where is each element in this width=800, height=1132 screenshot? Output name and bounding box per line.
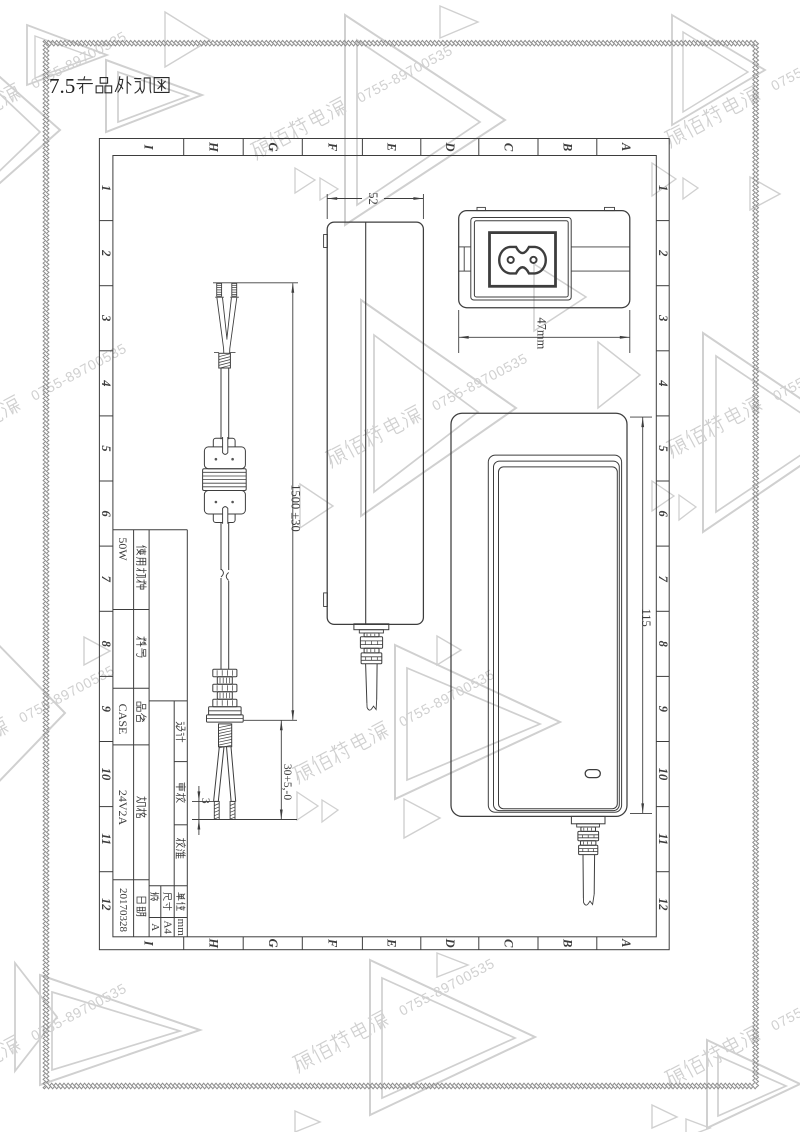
svg-text:50W: 50W — [116, 537, 130, 561]
svg-text:G: G — [266, 142, 280, 151]
svg-text:A: A — [619, 938, 633, 947]
svg-text:B: B — [560, 938, 574, 947]
svg-text:2: 2 — [99, 249, 113, 256]
svg-text:H: H — [206, 141, 220, 153]
svg-text:3: 3 — [199, 798, 211, 804]
svg-text:11: 11 — [99, 833, 113, 845]
svg-text:12: 12 — [656, 898, 670, 911]
svg-text:10: 10 — [656, 768, 670, 781]
svg-text:3: 3 — [656, 314, 670, 321]
svg-text:H: H — [206, 937, 220, 949]
svg-text:2: 2 — [656, 249, 670, 256]
svg-text:4: 4 — [99, 379, 113, 386]
svg-text:0755-89700535: 0755-89700535 — [396, 955, 497, 1019]
svg-text:20170328: 20170328 — [117, 888, 129, 933]
svg-text:I: I — [141, 144, 155, 151]
svg-text:24V2A: 24V2A — [116, 790, 130, 826]
svg-text:E: E — [385, 142, 399, 151]
svg-text:7.5: 7.5 — [49, 74, 75, 98]
svg-text:E: E — [385, 938, 399, 947]
svg-text:C: C — [501, 143, 515, 152]
svg-text:1500 ±30: 1500 ±30 — [288, 484, 302, 532]
svg-text:11: 11 — [656, 833, 670, 845]
svg-text:30+5,-0: 30+5,-0 — [281, 764, 293, 800]
svg-text:F: F — [325, 142, 339, 152]
svg-text:5: 5 — [656, 445, 670, 451]
svg-text:D: D — [443, 141, 457, 151]
svg-text:0755-89700535: 0755-89700535 — [396, 666, 497, 730]
svg-text:8: 8 — [99, 641, 113, 648]
svg-text:0755-89700535: 0755-89700535 — [768, 30, 800, 94]
svg-text:6: 6 — [99, 510, 113, 517]
svg-text:G: G — [266, 939, 280, 948]
svg-text:1: 1 — [99, 185, 113, 191]
svg-text:D: D — [443, 938, 457, 948]
svg-text:115: 115 — [639, 608, 653, 626]
svg-text:1: 1 — [656, 185, 670, 191]
svg-text:8: 8 — [656, 641, 670, 648]
svg-text:7: 7 — [99, 576, 113, 583]
svg-text:9: 9 — [99, 706, 113, 713]
svg-text:5: 5 — [99, 445, 113, 451]
svg-text:CASE: CASE — [116, 704, 130, 735]
svg-text:A: A — [619, 142, 633, 151]
svg-text:0755-89700535: 0755-89700535 — [768, 970, 800, 1034]
svg-text:C: C — [501, 939, 515, 948]
svg-text:12: 12 — [99, 898, 113, 911]
svg-text:52: 52 — [366, 192, 380, 205]
svg-text:A: A — [149, 923, 161, 931]
svg-text:I: I — [141, 940, 155, 947]
svg-text:47mm: 47mm — [535, 317, 549, 349]
svg-text:0755-89700535: 0755-89700535 — [16, 662, 117, 726]
svg-text:A4: A4 — [162, 920, 174, 934]
svg-text:6: 6 — [656, 510, 670, 517]
svg-text:3: 3 — [99, 314, 113, 321]
svg-text:10: 10 — [99, 768, 113, 781]
svg-text:mm: mm — [175, 919, 187, 937]
svg-text:B: B — [560, 142, 574, 151]
svg-text:7: 7 — [656, 576, 670, 583]
svg-text:4: 4 — [656, 379, 670, 386]
svg-text:F: F — [325, 938, 339, 948]
svg-text:9: 9 — [656, 706, 670, 713]
